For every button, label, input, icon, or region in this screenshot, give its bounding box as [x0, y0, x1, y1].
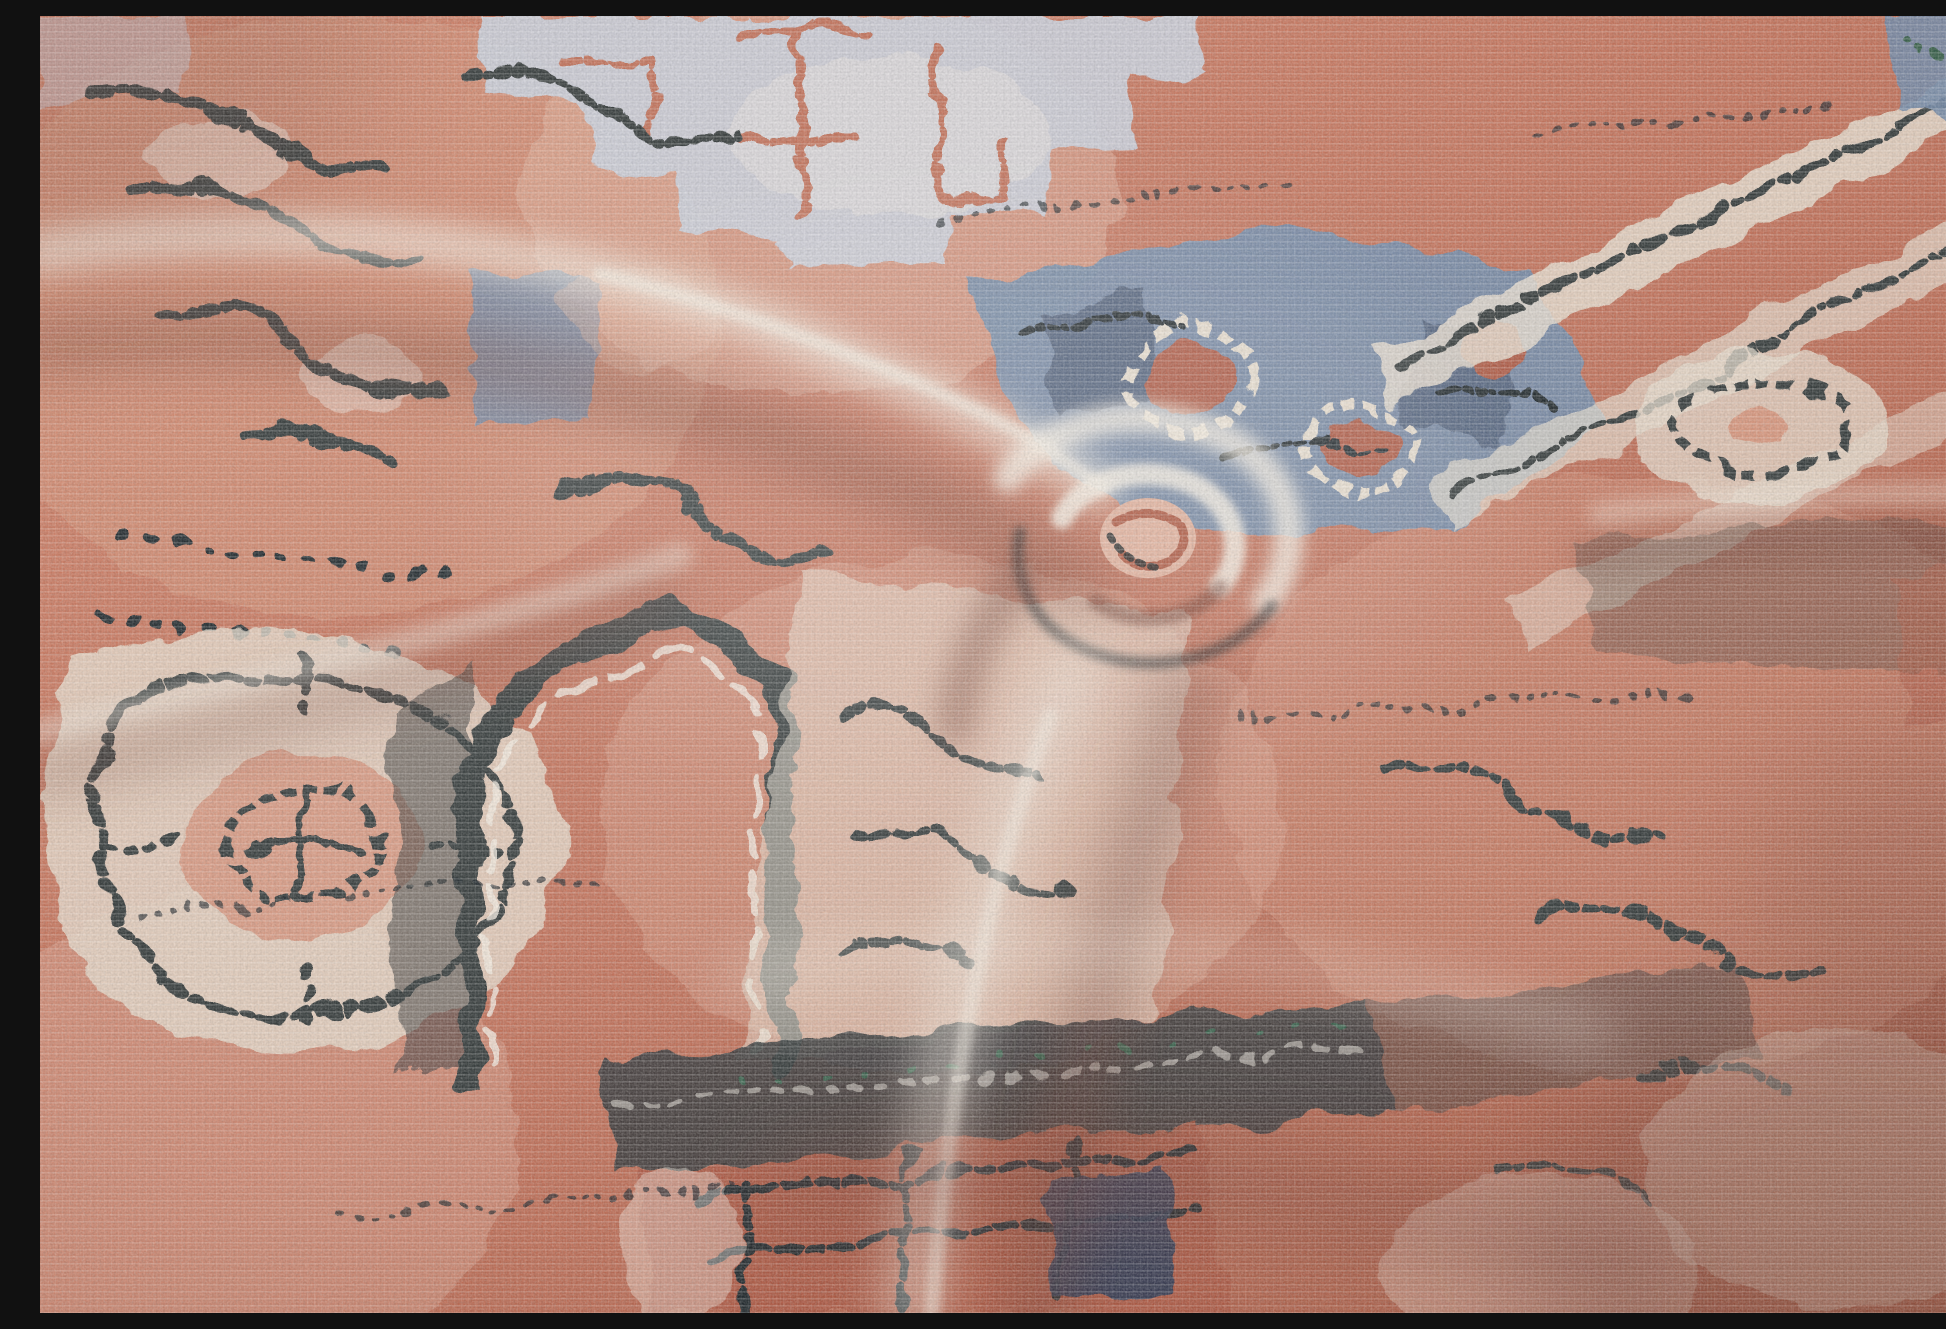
rug-photo-canvas	[40, 16, 1946, 1313]
rug-photo	[40, 16, 1946, 1313]
dark-print-grain	[40, 16, 1946, 1313]
weave-texture-overlay	[40, 16, 1946, 1313]
